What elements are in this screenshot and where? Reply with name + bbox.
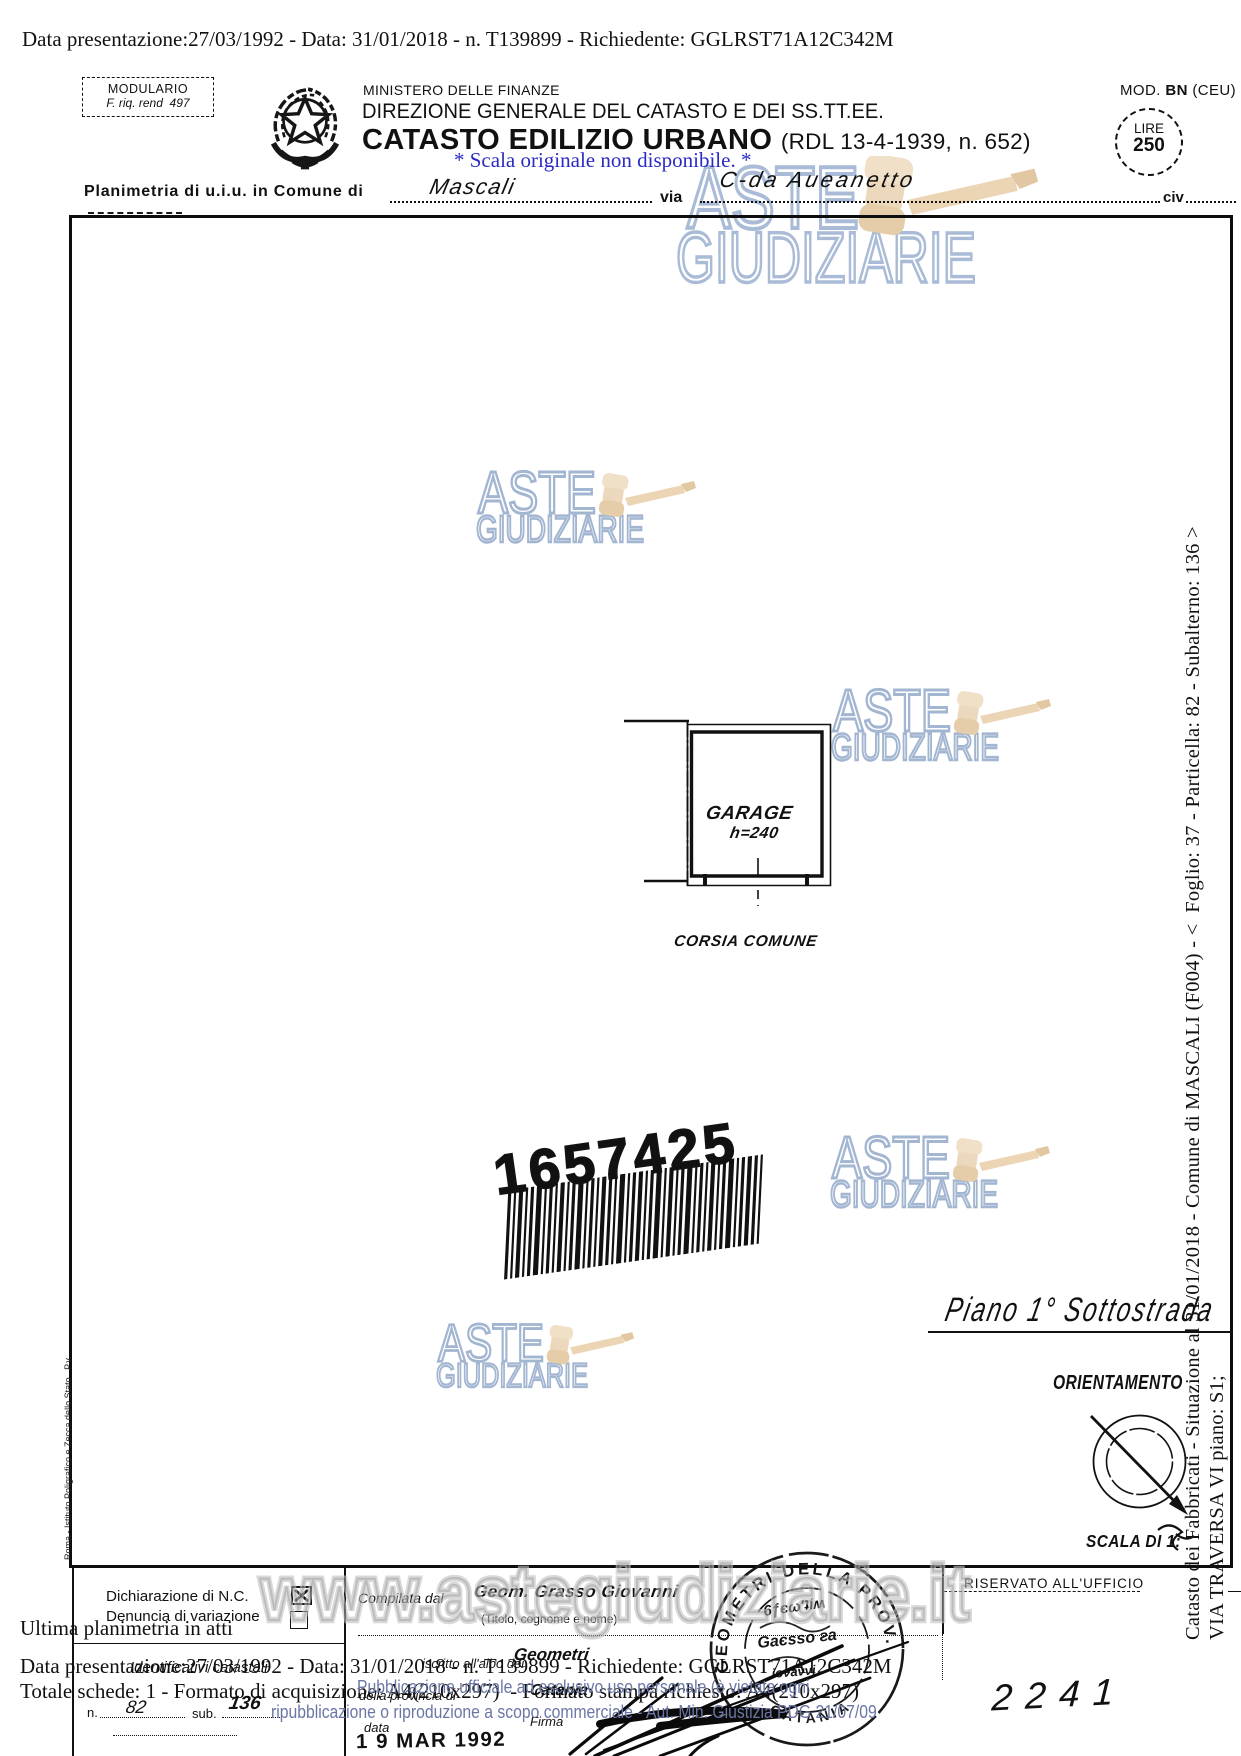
svg-text:www.astegiudiziarie.it: www.astegiudiziarie.it [259,1550,970,1637]
